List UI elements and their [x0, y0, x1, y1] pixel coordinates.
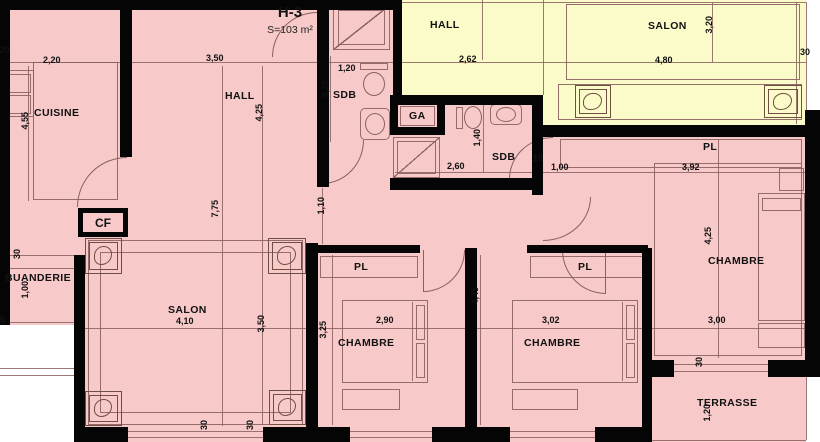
dim-label-2-62: 2,62 [459, 54, 477, 64]
room-label-pl: PL [578, 261, 592, 273]
dim-label-7-75: 7,75 [210, 200, 220, 218]
dim-label-20: 20 [0, 45, 10, 55]
door-leaf [605, 250, 606, 294]
thin-line [398, 2, 806, 3]
nightstand [779, 168, 804, 191]
dim-label-4-80: 4,80 [655, 55, 673, 65]
thin-line [0, 375, 74, 376]
room-label-salon: SALON [168, 304, 207, 316]
salon-rug-outline [566, 4, 800, 80]
wall [642, 248, 652, 377]
room-label-ga: GA [409, 110, 426, 122]
dim-line [332, 255, 333, 425]
wall [465, 248, 477, 427]
cf-label: CF [95, 216, 111, 230]
toilet-bowl [363, 72, 385, 96]
plan-title: H-3 [255, 4, 325, 21]
window-line [350, 431, 432, 432]
yellow-hall-area [398, 0, 543, 97]
thin-line [0, 322, 74, 323]
dim-label-4-25: 4,25 [703, 227, 713, 245]
dim-label-3-50: 3,50 [206, 53, 224, 63]
dim-label-4-55: 4,55 [20, 112, 30, 130]
closet-pl1 [320, 256, 418, 278]
dim-label-3-92: 3,92 [682, 162, 700, 172]
dim-label-2-90: 2,90 [376, 315, 394, 325]
dim-label-4-45: 4,45 [470, 287, 480, 305]
window-line [674, 371, 768, 372]
column-wood [85, 391, 122, 426]
dim-label-1-00: 1,00 [551, 162, 569, 172]
wall [318, 245, 420, 253]
wall [432, 427, 510, 442]
window-line [128, 437, 263, 438]
plan-area: S=103 m² [248, 24, 332, 36]
shower-diagonal [393, 137, 440, 178]
dim-label-3-20: 3,20 [704, 16, 714, 34]
bed-line [622, 302, 623, 381]
wall [393, 0, 402, 97]
dim-label-1-00: 1,00 [20, 281, 30, 299]
dim-label-2-20: 2,20 [43, 55, 61, 65]
kitchen-sink-bowl [9, 74, 31, 93]
dim-label-1-40: 1,40 [472, 129, 482, 147]
terrace-edge-line [652, 440, 806, 441]
exterior-bottom-right [806, 377, 820, 442]
cf-box: CF [78, 208, 128, 237]
wall [532, 125, 806, 137]
dim-label-1-20: 1,20 [702, 404, 712, 422]
dim-label-30: 30 [12, 249, 22, 259]
room-label-chambre: CHAMBRE [338, 337, 394, 349]
pillow [762, 198, 801, 211]
door-leaf [423, 250, 424, 292]
wall [805, 110, 820, 377]
dim-label-30: 30 [800, 47, 810, 57]
wall [390, 95, 543, 105]
bench [758, 323, 805, 348]
wall-ga [437, 103, 445, 135]
wall [74, 255, 85, 442]
thin-line [543, 0, 544, 95]
washbasin-bowl [365, 113, 385, 135]
dresser [512, 389, 578, 410]
dim-label-30: 30 [199, 420, 209, 430]
wall [0, 0, 400, 10]
washbasin-bowl [496, 107, 516, 122]
dim-label-30: 30 [245, 420, 255, 430]
dim-label-30: 30 [694, 357, 704, 367]
room-label-buanderie: BUANDERIE [5, 272, 71, 284]
column-wood [764, 85, 802, 118]
bed [758, 193, 805, 321]
wall [642, 360, 674, 377]
shower-diagonal [333, 5, 390, 50]
dim-line [480, 255, 481, 425]
window-line [510, 431, 595, 432]
pillow [626, 343, 635, 378]
window-line [674, 364, 768, 365]
dim-label-3-02: 3,02 [542, 315, 560, 325]
window-line [350, 437, 432, 438]
dresser [342, 389, 400, 410]
room-label-sdb: SDB [492, 151, 515, 163]
room-label-pl: PL [354, 261, 368, 273]
toilet-tank [360, 63, 388, 70]
dim-label-2-60: 2,60 [447, 161, 465, 171]
wall [527, 245, 648, 253]
wall [768, 360, 806, 377]
dim-label-1-20: 1,20 [338, 63, 356, 73]
dim-label-3-00: 3,00 [708, 315, 726, 325]
room-label-sdb: SDB [333, 89, 356, 101]
room-label-cuisine: CUISINE [34, 107, 79, 119]
pillow [416, 305, 425, 340]
toilet-tank [456, 107, 463, 129]
column-wood [269, 390, 306, 425]
dim-label-5: 5 [0, 315, 5, 325]
column-wood [268, 238, 306, 274]
room-label-chambre: CHAMBRE [524, 337, 580, 349]
window-line [510, 437, 595, 438]
dim-line [483, 105, 484, 172]
dim-label-3-50: 3,50 [256, 315, 266, 333]
dim-label-4-10: 4,10 [176, 316, 194, 326]
exterior-bottom-left [0, 325, 74, 442]
wall [120, 10, 132, 157]
wall [390, 178, 543, 190]
dim-line [330, 56, 331, 142]
pillow [416, 343, 425, 378]
room-label-salon: SALON [648, 20, 687, 32]
thin-line [482, 0, 483, 60]
dim-label-4-25: 4,25 [254, 104, 264, 122]
thin-line [10, 268, 74, 269]
thin-line [0, 368, 74, 369]
room-label-pl: PL [703, 141, 717, 153]
column-wood [575, 85, 611, 118]
wall [74, 427, 128, 442]
room-label-hall: HALL [225, 90, 255, 102]
dim-label-3-20: 3,20 [320, 80, 330, 98]
column-wood [85, 238, 122, 274]
dim-label-10: 10 [533, 153, 543, 163]
wall [306, 243, 318, 427]
toilet-bowl [464, 106, 482, 129]
wall [263, 427, 350, 442]
bed-line [412, 302, 413, 381]
dim-label-3-25: 3,25 [318, 321, 328, 339]
floor-plan: CF H-3 S=103 m² CUISINEHALLSDBGAHALLSALO… [0, 0, 820, 442]
wall [595, 427, 650, 442]
pillow [626, 305, 635, 340]
window-line [128, 431, 263, 432]
room-label-hall: HALL [430, 19, 460, 31]
dim-label-1-10: 1,10 [316, 197, 326, 215]
room-label-chambre: CHAMBRE [708, 255, 764, 267]
